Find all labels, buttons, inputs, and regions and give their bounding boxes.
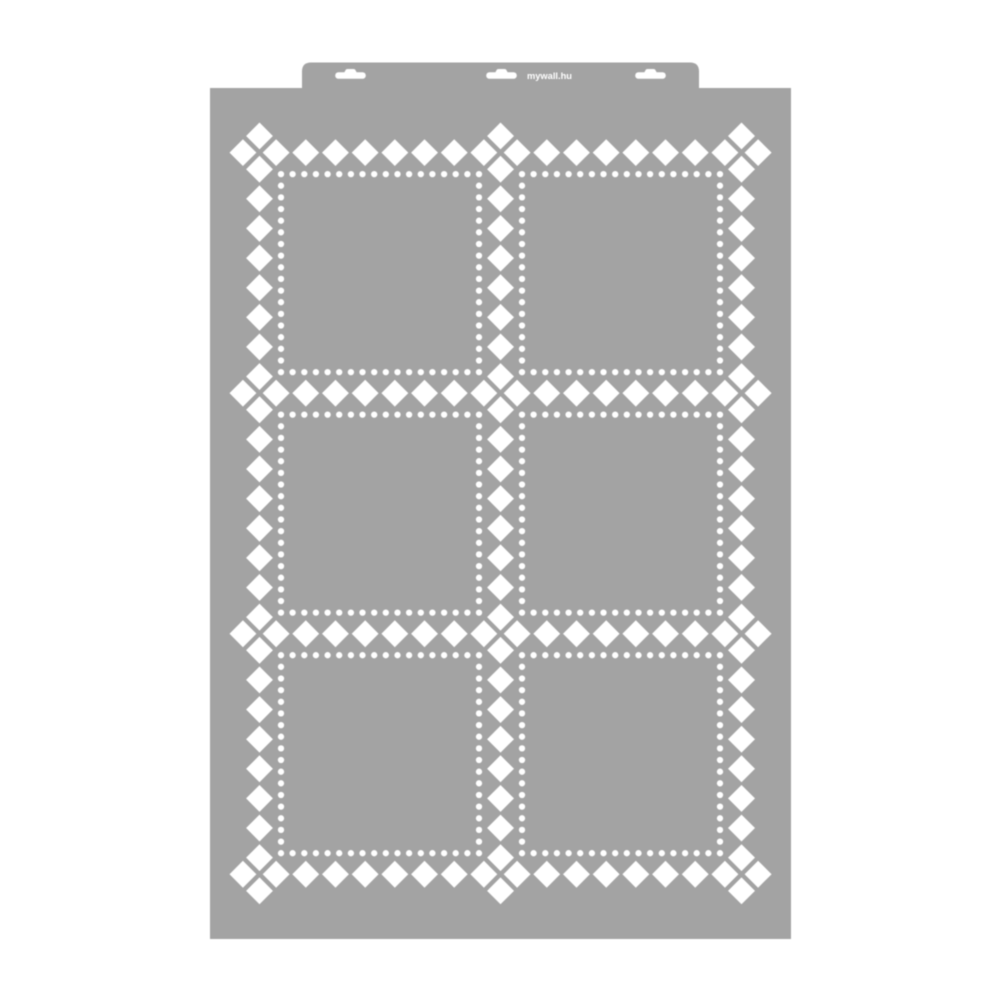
svg-text:mywall.hu: mywall.hu (527, 71, 572, 81)
